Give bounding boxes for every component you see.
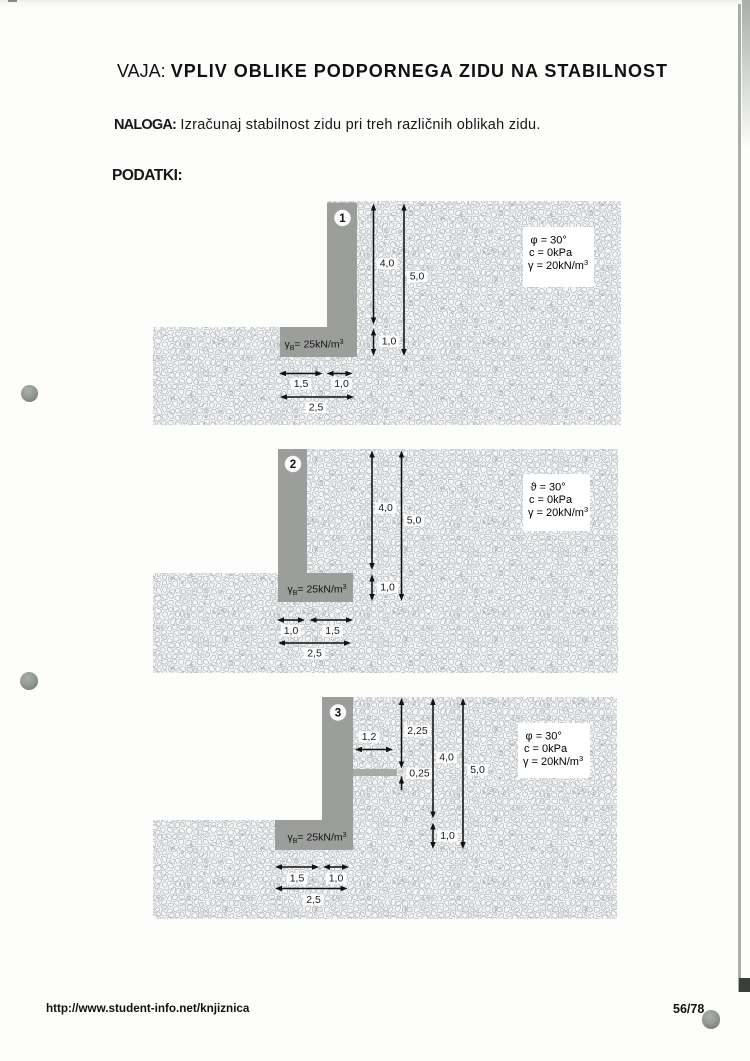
svg-text:1: 1 [339, 213, 346, 225]
svg-text:1,0: 1,0 [382, 335, 397, 347]
svg-text:1,0: 1,0 [284, 625, 299, 637]
svg-text:c = 0kPa: c = 0kPa [529, 247, 573, 259]
svg-text:2,5: 2,5 [306, 894, 321, 906]
svg-text:1,0: 1,0 [334, 378, 349, 390]
svg-text:1,5: 1,5 [294, 378, 309, 390]
svg-text:c = 0kPa: c = 0kPa [529, 494, 573, 506]
svg-text:4,0: 4,0 [380, 257, 395, 269]
svg-text:5,0: 5,0 [407, 514, 422, 526]
svg-text:γ = 20kN/m3: γ = 20kN/m3 [523, 754, 583, 768]
svg-text:0,25: 0,25 [409, 767, 430, 779]
svg-text:ϑ = 30°: ϑ = 30° [531, 482, 566, 494]
svg-text:φ = 30°: φ = 30° [531, 235, 567, 247]
svg-text:2,25: 2,25 [407, 725, 428, 737]
svg-text:γ = 20kN/m3: γ = 20kN/m3 [528, 505, 588, 519]
svg-text:c = 0kPa: c = 0kPa [524, 743, 568, 755]
svg-text:1,5: 1,5 [290, 872, 305, 884]
svg-text:1,0: 1,0 [329, 872, 344, 884]
svg-text:2,5: 2,5 [307, 647, 322, 659]
svg-text:2: 2 [290, 459, 296, 471]
svg-text:5,0: 5,0 [410, 270, 425, 282]
svg-text:3: 3 [335, 708, 341, 720]
svg-text:1,0: 1,0 [380, 581, 395, 593]
svg-text:γ = 20kN/m3: γ = 20kN/m3 [528, 258, 588, 272]
svg-text:1,2: 1,2 [362, 731, 377, 743]
svg-text:4,0: 4,0 [378, 502, 393, 514]
svg-text:5,0: 5,0 [470, 764, 485, 776]
svg-text:φ = 30°: φ = 30° [526, 731, 562, 743]
svg-text:2,5: 2,5 [309, 401, 324, 413]
svg-text:1,5: 1,5 [325, 625, 340, 637]
svg-text:1,0: 1,0 [440, 830, 455, 842]
svg-text:4,0: 4,0 [439, 751, 454, 763]
